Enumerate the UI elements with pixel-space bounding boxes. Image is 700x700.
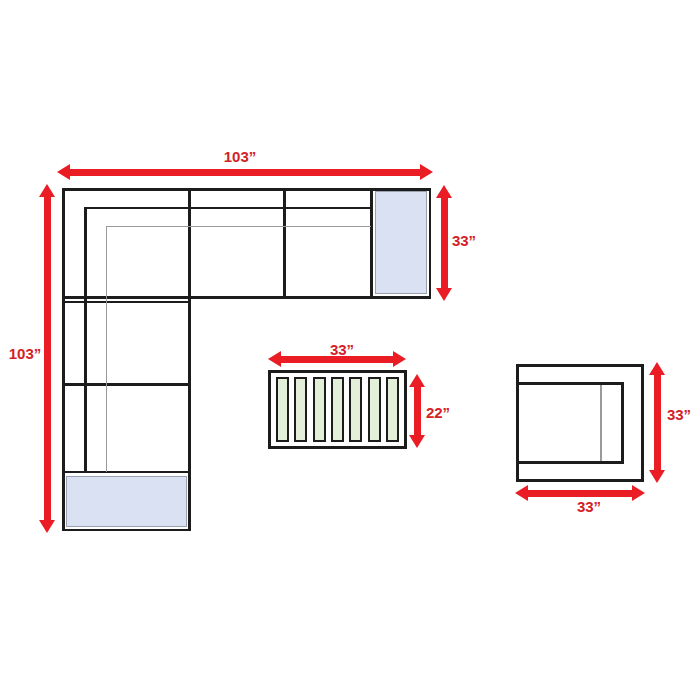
- arrow-shaft: [654, 375, 661, 470]
- dimension-label-table-depth: 22”: [426, 405, 450, 420]
- dimension-label-chair-height: 33”: [667, 407, 691, 422]
- arrowhead-left-icon: [57, 164, 70, 180]
- arrow-shaft: [441, 198, 448, 288]
- sofa-seat-divider-top-arm: [283, 188, 286, 299]
- furniture-dimension-diagram: 103” 103” 33” 33” 22” 33”: [0, 0, 700, 700]
- arrowhead-down-icon: [39, 520, 55, 533]
- arrowhead-up-icon: [39, 184, 55, 197]
- arrow-shaft: [70, 169, 420, 176]
- arrowhead-down-icon: [409, 435, 425, 448]
- chair-seam-line: [600, 385, 602, 461]
- table-slat: [331, 377, 344, 442]
- table-slat: [349, 377, 362, 442]
- dimension-label-sofa-height: 103”: [9, 346, 42, 361]
- sofa-backrest-line-horizontal: [84, 207, 372, 210]
- dimension-label-sofa-depth: 33”: [452, 233, 476, 248]
- chair-seat-outline: [516, 382, 624, 464]
- sofa-seam-line-horizontal: [106, 226, 371, 227]
- sofa-left-arm-right-edge: [188, 188, 191, 531]
- arrowhead-up-icon: [649, 362, 665, 375]
- arrow-shaft: [528, 490, 632, 497]
- sofa-ottoman-divider-top-arm: [370, 188, 373, 299]
- sofa-corner-seat-divider-left-arm: [62, 301, 190, 303]
- arrowhead-up-icon: [436, 185, 452, 198]
- table-slat: [313, 377, 326, 442]
- sofa-backrest-line-vertical: [84, 207, 87, 473]
- dimension-arrow-sofa-width: [57, 164, 433, 180]
- table-slat: [368, 377, 381, 442]
- arrowhead-down-icon: [436, 288, 452, 301]
- arrow-shaft: [414, 387, 421, 435]
- arrowhead-left-icon: [268, 351, 281, 367]
- arrowhead-up-icon: [409, 374, 425, 387]
- dimension-arrow-sofa-height: [39, 184, 55, 533]
- arrow-shaft: [44, 197, 51, 520]
- sofa-seam-line-vertical: [106, 226, 107, 472]
- dimension-arrow-sofa-depth: [436, 185, 452, 301]
- sofa-top-arm-bottom-edge: [62, 296, 431, 299]
- sofa-outline-bottom: [62, 529, 191, 532]
- sofa-outline-right-arm-end: [429, 188, 432, 299]
- sofa-seat-divider-left-arm: [62, 383, 190, 386]
- table-slat: [294, 377, 307, 442]
- sofa-ottoman-cushion-bottom: [66, 476, 187, 527]
- arrowhead-right-icon: [420, 164, 433, 180]
- dimension-arrow-chair-height: [649, 362, 665, 483]
- sofa-ottoman-cushion-right: [375, 191, 427, 294]
- dimension-arrow-table-depth: [409, 374, 425, 448]
- arrowhead-right-icon: [393, 351, 406, 367]
- dimension-label-chair-width: 33”: [577, 499, 601, 514]
- table-slat: [276, 377, 289, 442]
- arrowhead-down-icon: [649, 470, 665, 483]
- arrowhead-right-icon: [632, 485, 645, 501]
- sofa-ottoman-divider-left-arm: [62, 471, 190, 474]
- dimension-label-sofa-width: 103”: [224, 149, 257, 164]
- table-slat: [386, 377, 399, 442]
- arrowhead-left-icon: [515, 485, 528, 501]
- dimension-label-table-width: 33”: [330, 342, 354, 357]
- sofa-outline-left: [62, 188, 65, 531]
- coffee-table-topview: [268, 370, 407, 449]
